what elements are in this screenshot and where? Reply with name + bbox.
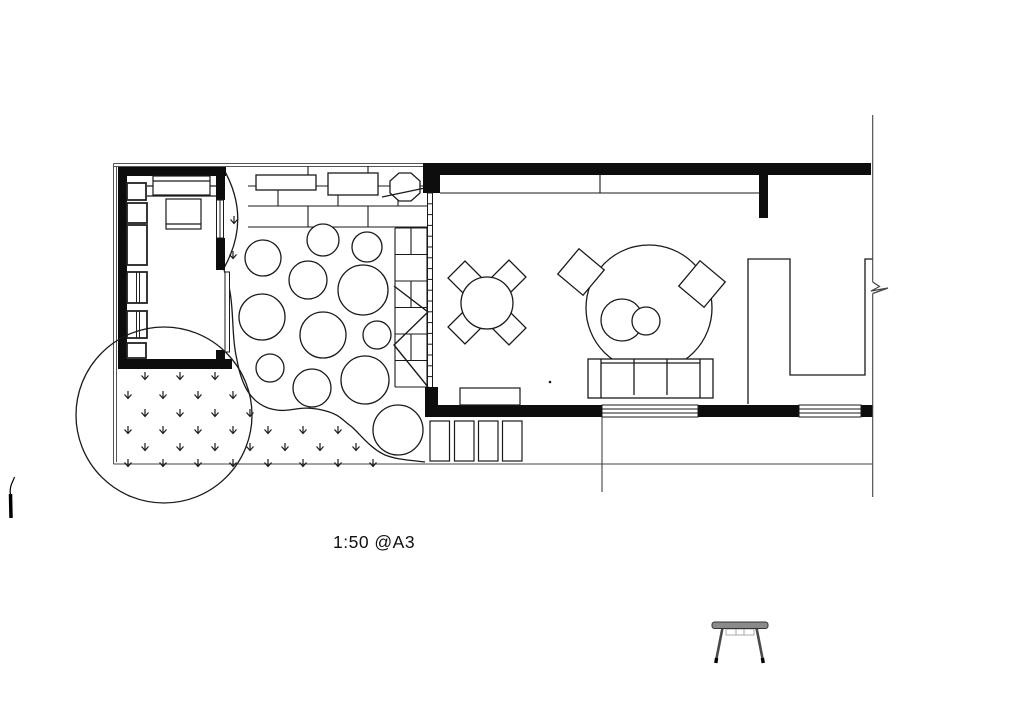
floor-plan-canvas: 1:50 @A3	[0, 0, 1024, 724]
path-planters	[256, 173, 425, 201]
outdoor-pavers	[430, 421, 522, 461]
small-table-elevation-icon	[712, 622, 768, 663]
lounge-chair	[558, 249, 604, 295]
table-leg-left	[716, 628, 723, 661]
grass-tuft	[212, 409, 219, 417]
grass-tuft	[177, 443, 184, 451]
grass-tuft	[125, 426, 132, 434]
grass-tuft	[195, 391, 202, 399]
grass-tuft	[353, 443, 360, 451]
table-leg-right	[757, 628, 764, 661]
bottom-wall	[861, 405, 873, 417]
break-line-symbol	[871, 282, 888, 294]
corner-pier	[423, 163, 440, 193]
stepping-stone	[289, 261, 327, 299]
grass-tuft	[212, 372, 219, 380]
window-bench	[460, 388, 520, 405]
grass-tuft	[282, 443, 289, 451]
grass-tuft	[142, 409, 149, 417]
stepping-stone	[307, 224, 339, 256]
lounge-chair	[679, 261, 725, 307]
u-shaped-unit	[748, 259, 873, 404]
stepping-stone	[338, 265, 388, 315]
grass-tuft	[177, 372, 184, 380]
tree-canopy-circle	[76, 327, 252, 503]
octagon-pot	[390, 173, 420, 201]
table-foot-right	[762, 658, 763, 663]
grass-tuft	[125, 459, 132, 467]
floor-plan-drawing: 1:50 @A3	[0, 0, 1024, 724]
main-living-room	[423, 163, 873, 417]
table-foot-left	[716, 658, 717, 663]
grass-tuft	[231, 216, 238, 224]
studio-sliding-door	[225, 272, 230, 352]
grass-tuft	[142, 443, 149, 451]
stepping-stone	[352, 232, 382, 262]
grass-tuft	[212, 443, 219, 451]
studio-furniture	[147, 176, 216, 229]
stub-partition	[759, 175, 768, 218]
grass-tuft	[265, 459, 272, 467]
stepping-stone	[300, 312, 346, 358]
table-top	[712, 622, 768, 629]
stepping-stone	[256, 354, 284, 382]
grass-tuft	[160, 459, 167, 467]
grass-tuft	[195, 459, 202, 467]
round-table-four-chairs	[448, 260, 526, 345]
grass-tuft	[335, 459, 342, 467]
grass-tuft	[370, 459, 377, 467]
grass-tuft	[230, 391, 237, 399]
grass-tuft	[300, 459, 307, 467]
inner-circle-small	[632, 307, 660, 335]
grass-tuft	[335, 426, 342, 434]
grass-tuft	[300, 426, 307, 434]
glazed-side-wall	[428, 193, 433, 387]
ink-mark	[10, 477, 14, 518]
round-rug-with-chairs	[558, 245, 725, 371]
garden-studio-room	[118, 167, 232, 369]
grass-tuft	[265, 426, 272, 434]
grass-tuft	[195, 426, 202, 434]
scale-label: 1:50 @A3	[333, 532, 415, 552]
stepping-stone	[373, 405, 423, 455]
table-apron	[726, 629, 754, 635]
planter-box	[256, 175, 316, 190]
grass-tuft	[317, 443, 324, 451]
studio-window	[217, 200, 224, 238]
stepping-stone	[341, 356, 389, 404]
stepping-stone	[363, 321, 391, 349]
grass-tuft	[230, 426, 237, 434]
grass-tuft	[160, 391, 167, 399]
lounge-chairs	[558, 249, 725, 307]
stepping-stone	[245, 240, 281, 276]
studio-bench	[153, 176, 210, 195]
planter-box	[328, 173, 378, 195]
interior-lines	[440, 175, 759, 193]
three-seat-sofa	[588, 359, 713, 398]
dining-table	[461, 277, 513, 329]
bottom-wall	[425, 405, 602, 417]
stepping-stone	[293, 369, 331, 407]
grass-tuft	[160, 426, 167, 434]
grass-tuft	[125, 391, 132, 399]
grass-tuft	[142, 372, 149, 380]
plan-dot	[549, 381, 552, 384]
bottom-wall	[698, 405, 799, 417]
grass-tuft	[177, 409, 184, 417]
planting-bed-curve	[223, 168, 238, 268]
top-wall	[437, 163, 871, 175]
stepping-stone	[239, 294, 285, 340]
